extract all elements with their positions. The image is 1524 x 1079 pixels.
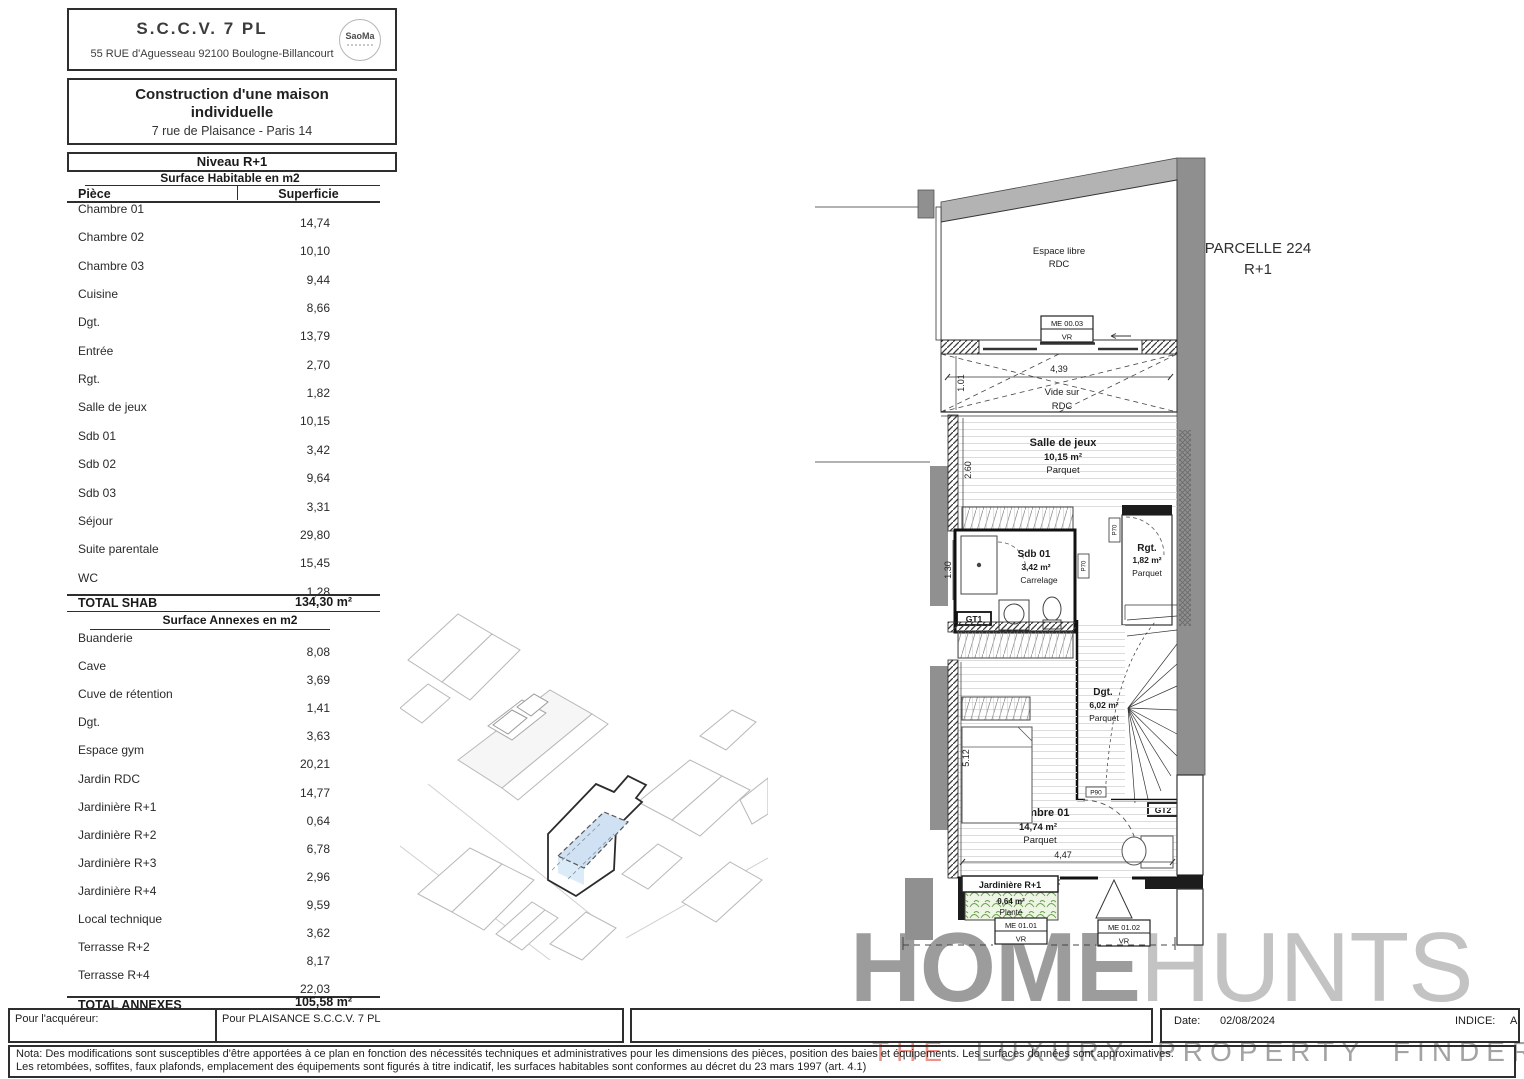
table-row-value: 20,21 <box>238 757 330 771</box>
bed <box>962 727 1032 823</box>
wall-band <box>948 622 1077 632</box>
wardrobe <box>962 697 1030 720</box>
espace-libre-label: Espace libre <box>1033 246 1085 257</box>
window-me0102: ME 01.02 VR <box>1098 920 1150 946</box>
room-sdb01: Sdb 01 3,42 m² Carrelage P70 1.30 GT1 <box>943 530 1089 632</box>
jardiniere-floor: Planté <box>1000 908 1023 917</box>
table-row-value: 14,77 <box>238 786 330 800</box>
wardrobe <box>958 632 1073 658</box>
tag-p70b: P70 <box>1082 560 1088 571</box>
signoff-plaisance-label: Pour PLAISANCE S.C.C.V. 7 PL <box>222 1013 381 1025</box>
sdb01-floor: Carrelage <box>1020 575 1058 585</box>
table-row-value: 2,96 <box>238 870 330 884</box>
dim-130: 1.30 <box>943 561 953 579</box>
room-dgt: Dgt. 6,02 m² Parquet <box>1077 620 1125 800</box>
table-row-value: 3,69 <box>238 673 330 687</box>
chambre01-area: 14,74 m² <box>1019 822 1057 833</box>
tag-me0101-vr: VR <box>1016 935 1027 944</box>
table-row-value: 8,08 <box>238 645 330 659</box>
jardiniere-area: 0,64 m² <box>997 897 1025 906</box>
table-row-value: 3,62 <box>238 926 330 940</box>
room-chambre01: Chambre 01 14,74 m² Parquet 5.12 4,47 <box>948 660 1177 878</box>
date-value: 02/08/2024 <box>1220 1015 1275 1027</box>
tag-me0102-vr: VR <box>1119 937 1130 946</box>
plan-sheet: HOMEHUNTS THE LUXURY PROPERTY FINDERS S.… <box>0 0 1524 1079</box>
table-row-name: Dgt. <box>78 715 100 729</box>
jardiniere: Jardinière R+1 0,64 m² Planté <box>962 876 1058 920</box>
rgt-area: 1,82 m² <box>1132 555 1161 565</box>
dim-260: 2.60 <box>963 461 973 479</box>
wardrobe <box>962 507 1073 531</box>
table-row-name: Terrasse R+4 <box>78 968 150 982</box>
signoff-acquereur-label: Pour l'acquéreur: <box>15 1013 98 1025</box>
vide-sur-rdc: 4,39 1.01 Vide sur RDC <box>941 354 1177 416</box>
sdb01-name: Sdb 01 <box>1018 549 1051 560</box>
annex-total-value: 105,58 m² <box>240 995 352 1009</box>
window-me0101: ME 01.01 VR <box>995 918 1047 944</box>
tag-me0102: ME 01.02 <box>1108 923 1140 932</box>
floor-plan: Espace libre RDC ME 00.03 VR 4,39 <box>815 150 1315 950</box>
signoff-empty-box <box>630 1008 1153 1043</box>
table-row-value: 8,17 <box>238 954 330 968</box>
tag-me0003-vr: VR <box>1062 333 1073 342</box>
nota-line1: Nota: Des modifications sont susceptible… <box>16 1048 1174 1060</box>
table-row-value: 6,78 <box>238 842 330 856</box>
rgt-floor: Parquet <box>1132 568 1162 578</box>
chair <box>1122 837 1146 865</box>
tag-me0003: ME 00.03 <box>1051 319 1083 328</box>
espace-libre-label2: RDC <box>1049 259 1070 270</box>
dgt-area: 6,02 m² <box>1089 700 1118 710</box>
salle-de-jeux-area: 10,15 m² <box>1044 452 1082 463</box>
signoff-plaisance-box: Pour PLAISANCE S.C.C.V. 7 PL <box>215 1008 624 1043</box>
dim-101: 1.01 <box>956 374 966 392</box>
vide-label2: RDC <box>1052 401 1073 412</box>
table-row-name: Jardinière R+3 <box>78 856 156 870</box>
axonometric-site-sketch <box>400 608 768 980</box>
dim-512: 5.12 <box>961 749 971 767</box>
table-row-value: 0,64 <box>238 814 330 828</box>
table-row-name: Jardinière R+2 <box>78 828 156 842</box>
table-row-name: Local technique <box>78 912 162 926</box>
nota-line2: Les retombées, soffites, faux plafonds, … <box>16 1061 866 1073</box>
dim-447: 4,47 <box>1054 850 1072 860</box>
indice-label: INDICE: <box>1455 1015 1495 1027</box>
date-label: Date: <box>1174 1015 1200 1027</box>
salle-de-jeux-floor: Parquet <box>1046 465 1080 476</box>
table-row-name: Jardin RDC <box>78 772 140 786</box>
chambre01-floor: Parquet <box>1023 835 1057 846</box>
table-row-name: Cuve de rétention <box>78 687 173 701</box>
dgt-floor: Parquet <box>1089 713 1119 723</box>
signoff-acquereur-box: Pour l'acquéreur: <box>8 1008 217 1043</box>
table-row-name: Jardinière R+1 <box>78 800 156 814</box>
tag-me0101: ME 01.01 <box>1005 921 1037 930</box>
dim-439: 4,39 <box>1050 364 1068 374</box>
toilet <box>1043 597 1061 621</box>
table-row-name: Terrasse R+2 <box>78 940 150 954</box>
salle-de-jeux-name: Salle de jeux <box>1030 437 1098 449</box>
tag-p70a: P70 <box>1113 524 1119 535</box>
table-row-value: 3,63 <box>238 729 330 743</box>
sdb01-area: 3,42 m² <box>1021 562 1050 572</box>
dgt-name: Dgt. <box>1093 687 1113 698</box>
table-row-name: Espace gym <box>78 743 144 757</box>
vide-label: Vide sur <box>1045 387 1080 398</box>
room-rgt: Rgt. 1,82 m² Parquet P70 <box>1109 505 1172 625</box>
parcelle-label: PARCELLE 224 <box>1205 240 1311 257</box>
parcelle-level: R+1 <box>1244 261 1272 278</box>
nota-box: Nota: Des modifications sont susceptible… <box>8 1045 1516 1078</box>
table-row-value: 9,59 <box>238 898 330 912</box>
table-row-name: Buanderie <box>78 631 133 645</box>
neighbor-buildings <box>400 614 768 960</box>
rgt-name: Rgt. <box>1137 543 1157 554</box>
door-leafs <box>1096 880 1132 918</box>
tag-p90: P90 <box>1090 790 1102 797</box>
table-row-value: 1,41 <box>238 701 330 715</box>
date-indice-box: Date: 02/08/2024 INDICE: A <box>1160 1008 1520 1043</box>
jardiniere-name: Jardinière R+1 <box>979 880 1041 890</box>
table-row-name: Jardinière R+4 <box>78 884 156 898</box>
table-row-name: Cave <box>78 659 106 673</box>
indice-value: A <box>1510 1015 1517 1027</box>
